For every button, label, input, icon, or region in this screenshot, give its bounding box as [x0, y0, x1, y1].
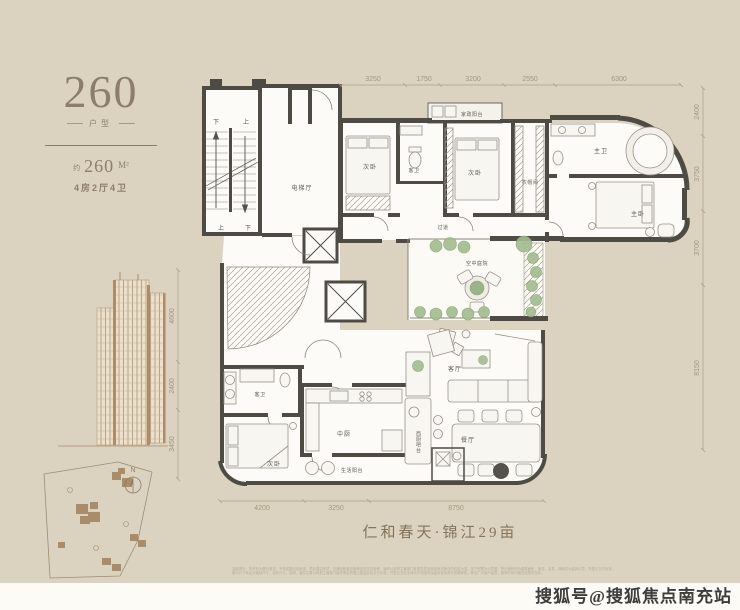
label-cloakroom: 衣帽间 — [522, 179, 539, 186]
bedroom-a-furniture — [346, 136, 390, 210]
dim-left-3: 3450 — [169, 436, 176, 452]
label-dining-room: 餐厅 — [461, 436, 475, 444]
stair-label-top-left: 下 — [213, 119, 219, 126]
watermark-bar: 搜狐号@搜狐焦点南充站 — [0, 583, 740, 610]
dim-right-2: 3750 — [694, 166, 701, 182]
compass-n-label: N — [130, 467, 135, 474]
label-guest-bath-bottom: 客卫 — [254, 391, 265, 398]
bedroom-c-furniture — [226, 423, 297, 469]
stair-label-top-right: 上 — [243, 118, 249, 126]
watermark-text: 搜狐号@搜狐焦点南充站 — [535, 583, 732, 610]
label-bedroom-bottom: 次卧 — [267, 460, 281, 468]
stair-label-bottom-right: 下 — [245, 225, 251, 232]
dim-bottom-2: 3250 — [328, 505, 344, 512]
label-bedroom-mid: 次卧 — [468, 169, 482, 177]
dim-left-1: 4600 — [169, 308, 176, 324]
project-title: 仁和春天·锦江29亩 — [230, 521, 650, 542]
label-service-balcony: 生活阳台 — [341, 467, 363, 474]
building-illustration — [58, 272, 168, 446]
label-living-room: 客厅 — [448, 365, 462, 373]
dim-top-1: 3250 — [365, 76, 381, 83]
label-corridor: 过道 — [437, 224, 448, 231]
floor-plan-drawing: 下 上 上 下 — [0, 0, 740, 610]
poster-canvas: 260 户型 约 260 M² 4房2厅4卫 — [0, 0, 740, 610]
disclaimer: 温馨提示：本资料为要约邀请，不构成要约或承诺，项目周边环境、交通及配套设施等信息… — [232, 567, 736, 575]
dim-top-3: 3200 — [465, 76, 481, 83]
label-master-bedroom: 主卧 — [631, 210, 645, 218]
disclaimer-line-2: 图中尺寸标注为轴线尺寸，实际尺寸、结构、管井位置以规划主管部门最终审定的施工图及… — [232, 571, 736, 575]
label-laundry-balcony: 家政阳台 — [461, 111, 483, 118]
dim-left-2: 2400 — [169, 378, 176, 394]
bedroom-b-furniture — [445, 128, 499, 208]
dim-right-4: 8150 — [694, 360, 701, 376]
dim-top-2: 1750 — [416, 76, 432, 83]
dim-top-5: 6300 — [611, 76, 627, 83]
label-guest-bath-top: 客卫 — [408, 167, 419, 174]
label-elevator-hall: 电梯厅 — [291, 184, 312, 192]
dim-right-3: 3700 — [694, 240, 701, 256]
label-master-bath: 主卫 — [594, 147, 608, 155]
label-courtyard: 空中庭院 — [466, 260, 488, 267]
site-plan: N — [44, 462, 152, 578]
stair-label-bottom-left: 上 — [218, 224, 224, 232]
label-west-kitchen-bar: 西厨吧台 — [415, 431, 421, 454]
dim-right-1: 2400 — [694, 104, 701, 120]
label-chinese-kitchen: 中厨 — [337, 430, 351, 438]
dim-bottom-3: 8750 — [448, 505, 464, 512]
dim-bottom-1: 4200 — [254, 505, 270, 512]
label-bedroom-top: 次卧 — [363, 163, 377, 171]
dim-top-4: 2550 — [522, 76, 538, 83]
